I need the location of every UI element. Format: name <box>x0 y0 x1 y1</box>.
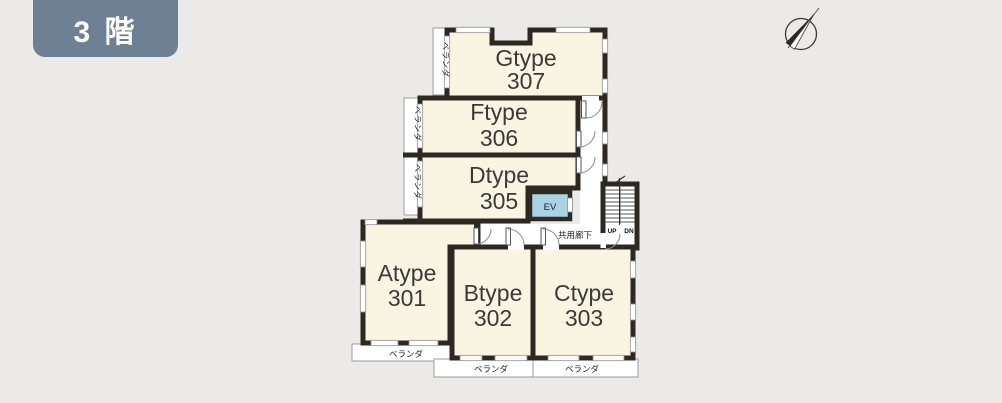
room-number-ftype: 306 <box>480 125 518 151</box>
door-leaf-ctype <box>541 228 546 245</box>
stair-opening <box>601 233 607 248</box>
room-number-btype: 302 <box>474 305 512 331</box>
window <box>630 304 635 320</box>
window <box>630 261 635 278</box>
window <box>593 355 624 360</box>
door-leaf-atype <box>474 228 479 244</box>
room-label-ctype: Ctype <box>554 280 614 306</box>
corridor-label: 共用廊下 <box>558 230 593 240</box>
door-leaf-dtype <box>577 157 582 173</box>
room-label-dtype: Dtype <box>469 162 529 188</box>
window <box>556 27 590 32</box>
window <box>602 164 607 176</box>
room-label-btype: Btype <box>464 280 523 306</box>
window <box>495 355 527 360</box>
window <box>360 241 365 267</box>
window <box>602 79 607 93</box>
room-number-gtype: 307 <box>507 68 545 94</box>
wall-veranda-divider-1 <box>403 153 423 158</box>
window <box>460 355 482 360</box>
window <box>360 285 365 312</box>
room-number-ctype: 303 <box>565 305 603 331</box>
room-number-atype: 301 <box>388 285 426 311</box>
window <box>548 355 579 360</box>
room-label-ftype: Ftype <box>470 99 528 125</box>
floor-plan-page: 3 階 <box>0 0 1002 403</box>
veranda-label-dtype: ベランダ <box>413 164 423 200</box>
room-label-atype: Atype <box>378 260 437 286</box>
window <box>630 337 635 352</box>
veranda-label-ctype: ベランダ <box>565 364 600 374</box>
window <box>371 340 398 345</box>
door-leaf-ftype <box>577 131 582 147</box>
window <box>602 39 607 53</box>
compass-icon <box>786 8 820 50</box>
veranda-label-ftype: ベランダ <box>413 106 423 142</box>
compass-needle-light <box>790 14 814 49</box>
window <box>409 340 438 345</box>
window <box>456 27 490 32</box>
window <box>365 220 377 225</box>
elevator-door <box>568 198 573 212</box>
room-number-dtype: 305 <box>480 188 518 214</box>
veranda-btype-ctype <box>434 359 638 377</box>
window <box>602 132 607 144</box>
veranda-label-gtype: ベランダ <box>441 42 451 78</box>
door-leaf-gtype <box>582 101 587 118</box>
stairs-down-label: DN <box>624 228 634 235</box>
floor-plan-svg: Gtype 307 Ftype 306 Dtype 305 Atype 301 … <box>0 0 1002 403</box>
veranda-label-atype: ベランダ <box>389 349 424 359</box>
elevator-label: EV <box>544 202 557 213</box>
door-leaf-btype <box>506 228 511 245</box>
veranda-label-btype: ベランダ <box>474 364 509 374</box>
stairs-up-label: UP <box>607 228 617 235</box>
wall-veranda-divider-2 <box>403 219 423 224</box>
